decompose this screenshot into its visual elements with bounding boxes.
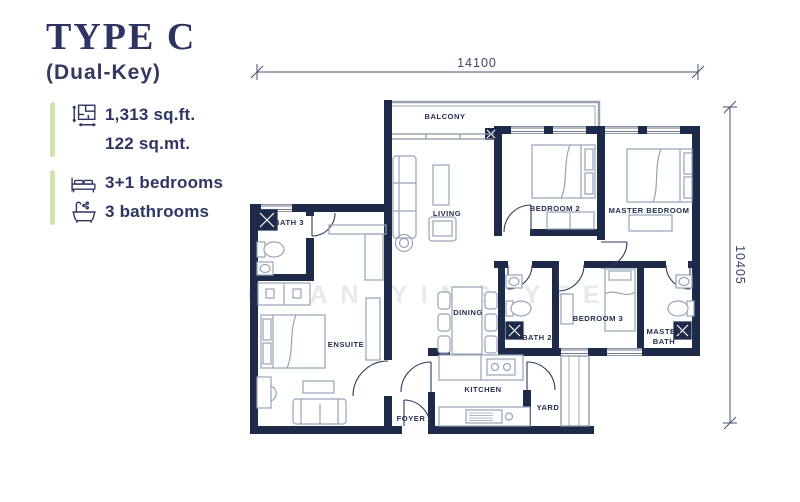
bedroom2-furniture <box>532 145 595 229</box>
room-label-master-bedroom: MASTER BEDROOM <box>609 206 690 215</box>
room-label-dining: DINING <box>453 308 483 317</box>
room-label-master-bath-1: MASTER <box>646 327 681 336</box>
master-bedroom-furniture <box>627 149 692 231</box>
service-shaft <box>561 356 589 426</box>
room-label-master-bath-2: BATH <box>653 337 676 346</box>
room-label-bedroom2: BEDROOM 2 <box>530 204 581 213</box>
room-label-bath3: BATH 3 <box>274 218 304 227</box>
dining-furniture <box>438 287 497 354</box>
dimension-right-value: 10405 <box>733 245 747 285</box>
balcony-parapet <box>388 102 599 126</box>
room-label-bedroom3: BEDROOM 3 <box>573 314 624 323</box>
floorplan-page: TYPE C (Dual-Key) 1,313 sq.ft. <box>0 0 800 502</box>
room-label-yard: YARD <box>537 403 560 412</box>
living-furniture <box>393 156 456 252</box>
room-label-balcony: BALCONY <box>424 112 465 121</box>
room-label-living: LIVING <box>433 209 461 218</box>
room-label-kitchen: KITCHEN <box>464 385 501 394</box>
dimension-top-value: 14100 <box>457 56 497 70</box>
floor-plan: CHAN YING YEE <box>0 0 800 502</box>
room-label-bath2: BATH 2 <box>522 333 552 342</box>
room-label-ensuite: ENSUITE <box>328 340 364 349</box>
room-label-foyer: FOYER <box>397 414 426 423</box>
corridor-fittings <box>329 225 386 280</box>
